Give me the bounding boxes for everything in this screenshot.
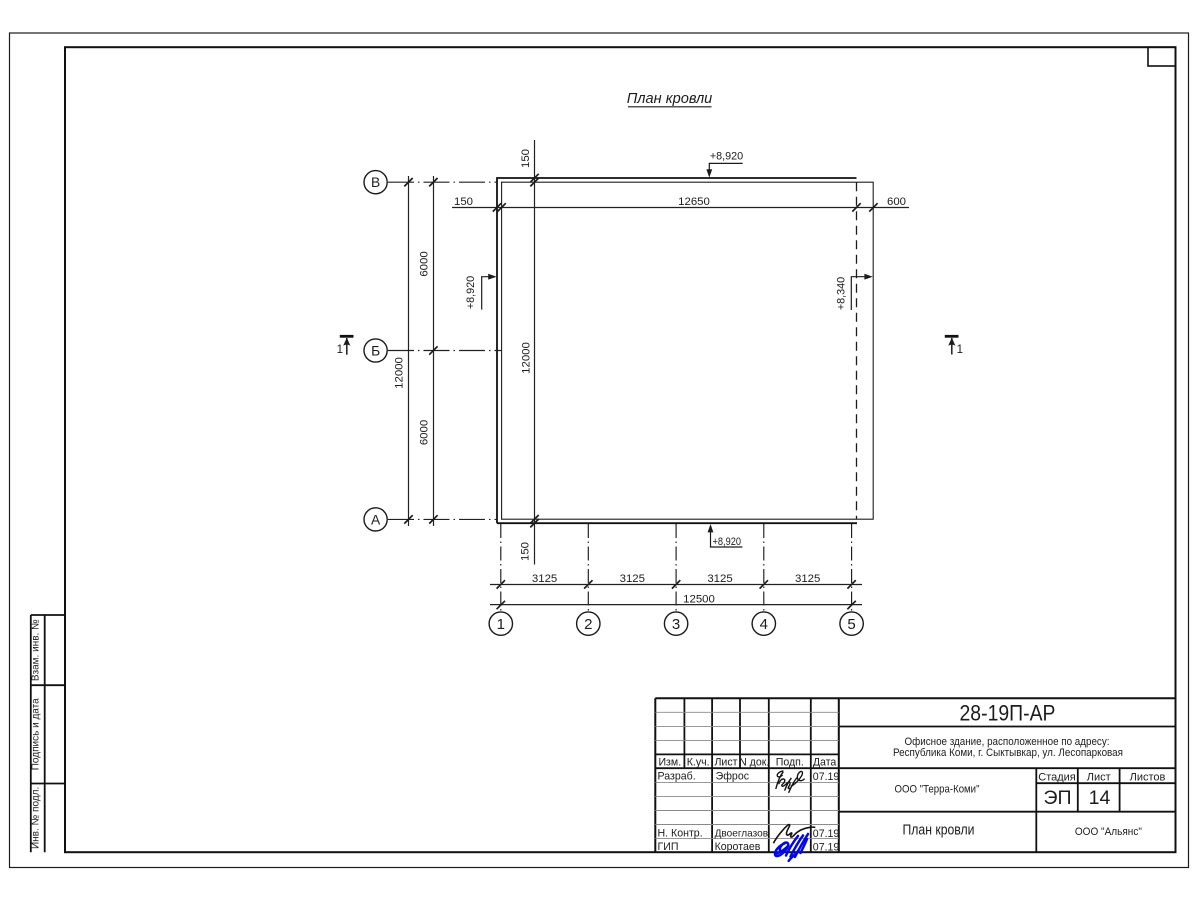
svg-text:3: 3 <box>672 616 680 633</box>
svg-text:В: В <box>371 175 380 190</box>
svg-text:ГИП: ГИП <box>658 841 679 853</box>
svg-text:12500: 12500 <box>683 594 715 606</box>
svg-text:Листов: Листов <box>1130 772 1166 784</box>
svg-text:Лист: Лист <box>1087 772 1111 784</box>
svg-text:Подп.: Подп. <box>776 756 804 768</box>
svg-text:+8,920: +8,920 <box>713 536 742 548</box>
svg-text:+8,920: +8,920 <box>465 276 477 309</box>
svg-text:План кровли: План кровли <box>627 91 713 107</box>
svg-text:3125: 3125 <box>532 573 557 585</box>
svg-text:28-19П-АР: 28-19П-АР <box>960 701 1056 726</box>
svg-text:А: А <box>371 512 381 527</box>
svg-text:ООО "Альянс": ООО "Альянс" <box>1075 826 1142 838</box>
svg-text:4: 4 <box>760 616 768 633</box>
svg-text:План кровли: План кровли <box>903 823 975 839</box>
svg-text:14: 14 <box>1089 787 1111 809</box>
svg-text:Взам. инв. №: Взам. инв. № <box>31 619 42 681</box>
svg-text:12000: 12000 <box>521 342 533 374</box>
svg-text:ООО "Терра-Коми": ООО "Терра-Коми" <box>895 784 980 796</box>
svg-text:5: 5 <box>847 616 855 633</box>
svg-text:3125: 3125 <box>620 573 645 585</box>
svg-text:3125: 3125 <box>795 573 820 585</box>
svg-text:600: 600 <box>887 196 906 208</box>
svg-text:Двоеглазов: Двоеглазов <box>715 828 769 840</box>
svg-text:6000: 6000 <box>418 420 430 445</box>
svg-text:150: 150 <box>454 196 473 208</box>
svg-text:Стадия: Стадия <box>1038 772 1076 784</box>
svg-text:Разраб.: Разраб. <box>658 771 696 783</box>
svg-text:6000: 6000 <box>418 251 430 276</box>
svg-text:Дата: Дата <box>813 756 837 768</box>
svg-text:+8,340: +8,340 <box>835 277 847 310</box>
svg-text:+8,920: +8,920 <box>710 150 743 162</box>
svg-text:Н. Контр.: Н. Контр. <box>658 828 703 840</box>
svg-text:2: 2 <box>584 616 592 633</box>
svg-text:12650: 12650 <box>678 196 710 208</box>
svg-text:Б: Б <box>371 344 380 359</box>
svg-text:Офисное здание, расположенное: Офисное здание, расположенное по адресу: <box>905 736 1110 748</box>
svg-text:07.19: 07.19 <box>813 771 840 783</box>
svg-text:150: 150 <box>520 542 532 561</box>
svg-text:1: 1 <box>337 344 343 356</box>
svg-text:1: 1 <box>957 344 963 356</box>
svg-text:07.19: 07.19 <box>813 828 840 840</box>
svg-text:07.19: 07.19 <box>813 842 840 854</box>
svg-text:Инв. № подл.: Инв. № подл. <box>31 787 42 849</box>
svg-text:Эфрос: Эфрос <box>716 771 750 783</box>
svg-text:Коротаев: Коротаев <box>715 841 761 853</box>
svg-text:Подпись и дата: Подпись и дата <box>31 698 42 770</box>
svg-text:1: 1 <box>497 616 505 633</box>
svg-text:К.уч.: К.уч. <box>687 756 710 768</box>
svg-text:12000: 12000 <box>394 357 406 389</box>
svg-text:150: 150 <box>520 149 532 168</box>
svg-text:N док.: N док. <box>739 756 769 768</box>
svg-text:3125: 3125 <box>707 573 732 585</box>
svg-text:Изм.: Изм. <box>658 756 681 768</box>
svg-text:ЭП: ЭП <box>1043 787 1071 809</box>
svg-text:Республика Коми, г. Сыктывкар,: Республика Коми, г. Сыктывкар, ул. Лесоп… <box>893 747 1123 759</box>
svg-text:Лист: Лист <box>714 756 737 768</box>
